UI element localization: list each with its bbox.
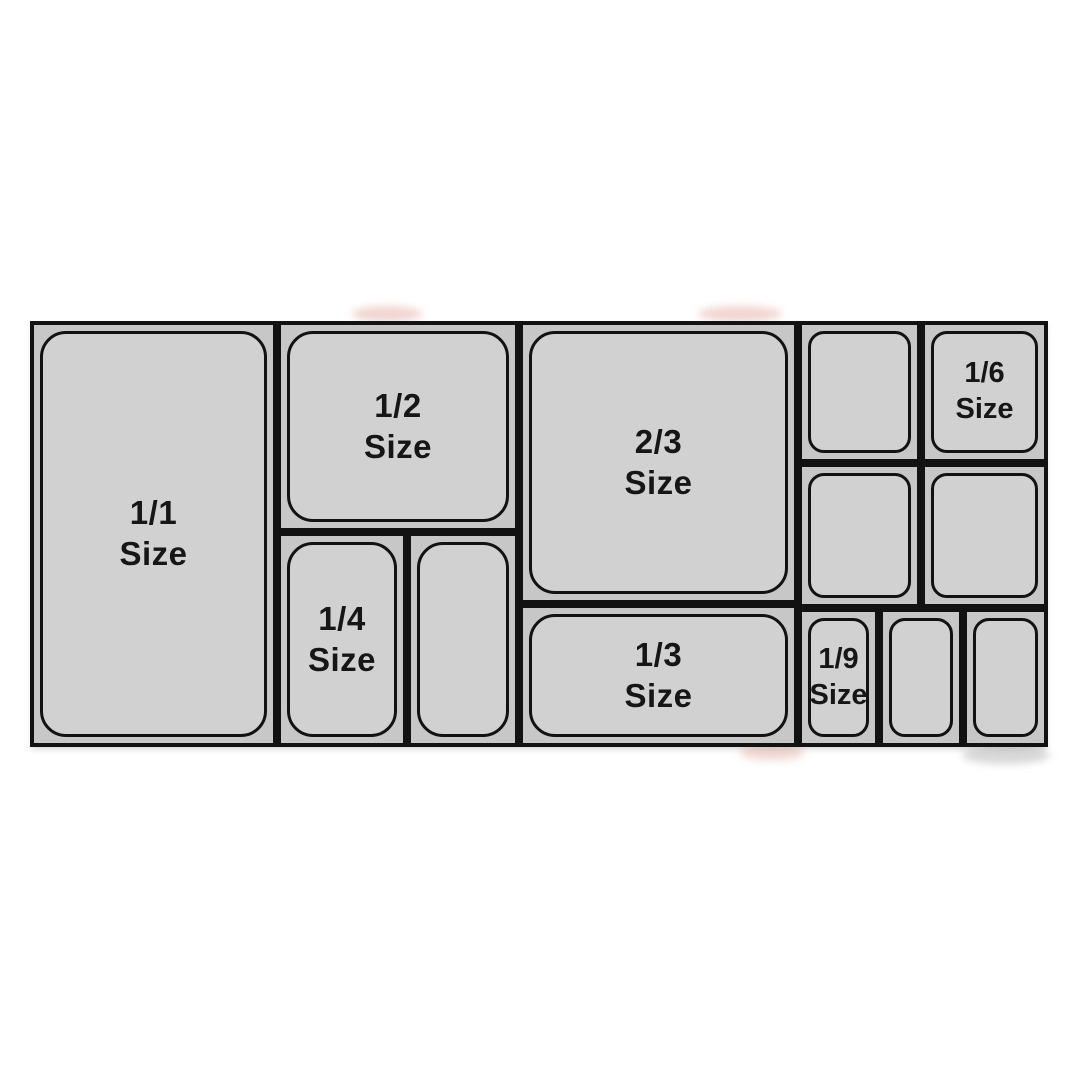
pan-size-label-line: Size — [308, 640, 376, 681]
pan-1-9-unlabeled-1 — [883, 612, 959, 743]
pan-outline: 1/3Size — [529, 614, 788, 737]
pan-outline: 1/9Size — [808, 618, 869, 737]
pan-1-1: 1/1Size — [34, 325, 273, 743]
pan-outline: 1/2Size — [287, 331, 509, 522]
pan-size-label-line: Size — [119, 534, 187, 575]
pan-size-label-line: 1/6 — [955, 356, 1013, 392]
pan-size-label: 1/4Size — [308, 599, 376, 681]
pan-outline — [808, 473, 911, 598]
pan-1-6-unlabeled-3 — [925, 467, 1044, 604]
photo-artifact — [962, 746, 1050, 764]
photo-artifact — [698, 306, 782, 322]
pan-size-label: 1/6Size — [955, 356, 1013, 428]
pan-size-label-line: 1/1 — [119, 493, 187, 534]
pan-size-label-line: Size — [624, 676, 692, 717]
pan-size-label-line: Size — [955, 392, 1013, 428]
pan-size-label-line: 1/2 — [364, 386, 432, 427]
pan-1-9: 1/9Size — [802, 612, 875, 743]
pan-size-label: 1/1Size — [119, 493, 187, 575]
pan-size-label-line: 1/3 — [624, 635, 692, 676]
photo-artifact — [352, 306, 422, 322]
pan-size-label-line: Size — [364, 427, 432, 468]
pan-outline: 1/4Size — [287, 542, 397, 737]
pan-size-label-line: Size — [809, 678, 867, 714]
photo-artifact — [740, 746, 804, 760]
page-background: 1/1Size1/2Size1/4Size2/3Size1/3Size1/6Si… — [0, 0, 1080, 1080]
pan-outline: 2/3Size — [529, 331, 788, 594]
pan-1-3: 1/3Size — [523, 608, 794, 743]
pan-1-2: 1/2Size — [281, 325, 515, 528]
pan-outline — [808, 331, 911, 453]
pan-outline — [931, 473, 1038, 598]
pan-2-3: 2/3Size — [523, 325, 794, 600]
pan-1-9-unlabeled-2 — [967, 612, 1044, 743]
pan-size-label-line: Size — [624, 463, 692, 504]
pan-size-label-line: 1/9 — [809, 642, 867, 678]
pan-1-6: 1/6Size — [925, 325, 1044, 459]
pan-1-6-unlabeled-1 — [802, 325, 917, 459]
pan-1-4: 1/4Size — [281, 536, 403, 743]
pan-outline — [889, 618, 953, 737]
gastronorm-pan-size-chart: 1/1Size1/2Size1/4Size2/3Size1/3Size1/6Si… — [30, 321, 1048, 747]
pan-1-6-unlabeled-2 — [802, 467, 917, 604]
pan-outline — [973, 618, 1038, 737]
pan-outline: 1/6Size — [931, 331, 1038, 453]
pan-size-label: 1/9Size — [809, 642, 867, 714]
pan-1-4-unlabeled — [411, 536, 515, 743]
pan-size-label: 2/3Size — [624, 422, 692, 504]
pan-size-label-line: 2/3 — [624, 422, 692, 463]
pan-size-label: 1/2Size — [364, 386, 432, 468]
pan-outline — [417, 542, 509, 737]
pan-outline: 1/1Size — [40, 331, 267, 737]
pan-size-label: 1/3Size — [624, 635, 692, 717]
pan-size-label-line: 1/4 — [308, 599, 376, 640]
